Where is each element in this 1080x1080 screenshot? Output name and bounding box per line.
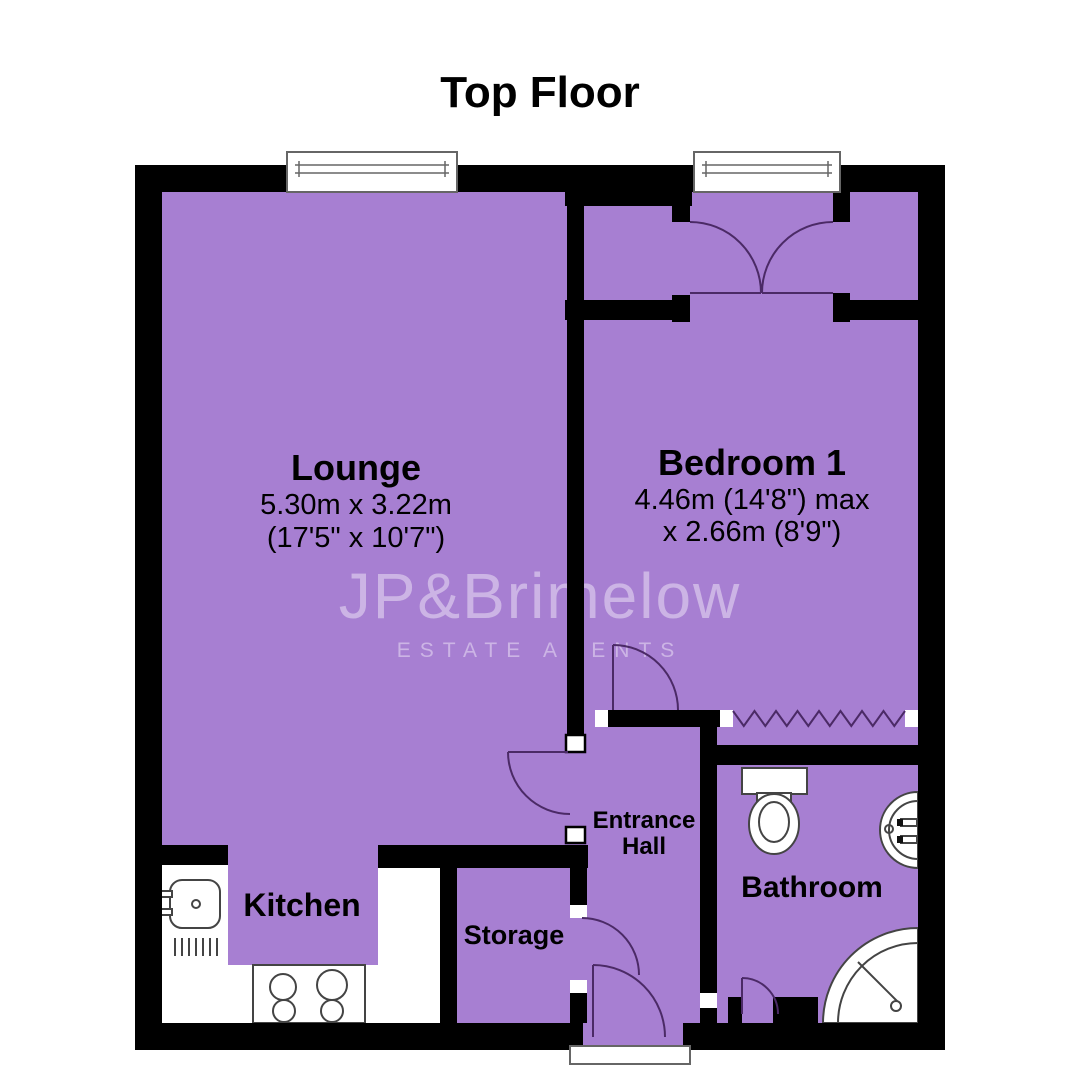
lounge-dim-metric: 5.30m x 3.22m [260,489,452,521]
entrance-hall-line1: Entrance [593,807,696,834]
watermark-name: JP&Brimelow [339,560,742,632]
lounge-dim-imperial: (17'5" x 10'7") [267,522,445,554]
lounge-window-icon [287,152,457,192]
kitchen-hob-icon [253,965,365,1023]
bedroom-window-icon [694,152,840,192]
kitchen-label: Kitchen [243,887,360,923]
watermark: JP&Brimelow ESTATE AGENTS [339,560,742,662]
bedroom-label: Bedroom 1 4.46m (14'8") max x 2.66m (8'9… [634,442,870,548]
bathroom-label: Bathroom [741,871,883,904]
floor-plan-page: JP&Brimelow ESTATE AGENTS [0,0,1080,1080]
bedroom-name: Bedroom 1 [658,442,846,483]
bedroom-dim-line1: 4.46m (14'8") max [634,484,870,516]
lounge-name: Lounge [291,447,421,488]
storage-label: Storage [464,920,565,950]
sink-drainer-lines [175,938,217,956]
bedroom-dim-line2: x 2.66m (8'9") [663,516,842,548]
entrance-threshold [570,1023,690,1064]
entrance-hall-line2: Hall [622,833,666,860]
floor-plan: JP&Brimelow ESTATE AGENTS [0,0,1080,1080]
page-title: Top Floor [440,68,640,117]
